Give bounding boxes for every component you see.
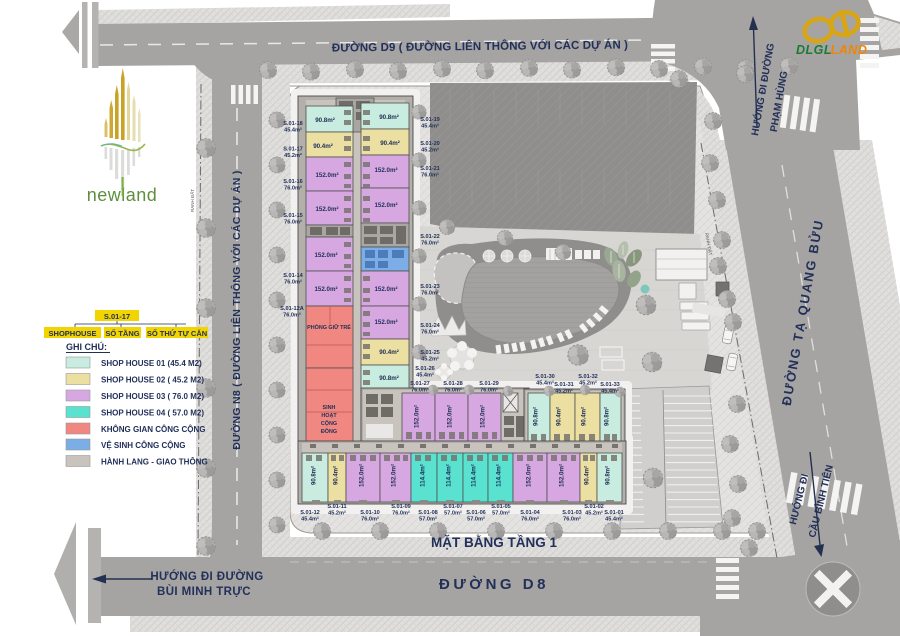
svg-text:45.4m²: 45.4m² — [421, 123, 439, 130]
svg-text:45.2m²: 45.2m² — [421, 147, 439, 154]
svg-text:152.0m²: 152.0m² — [414, 405, 421, 428]
svg-text:76.0m²: 76.0m² — [283, 312, 301, 319]
svg-text:152.0m²: 152.0m² — [315, 172, 338, 179]
svg-text:57.0m²: 57.0m² — [444, 510, 462, 517]
svg-text:RANH ĐẤT: RANH ĐẤT — [189, 189, 195, 212]
svg-text:45.4m²: 45.4m² — [605, 516, 623, 523]
svg-text:76.0m²: 76.0m² — [284, 219, 302, 226]
svg-text:S.01-11: S.01-11 — [327, 504, 346, 510]
svg-text:114.4m²: 114.4m² — [496, 464, 503, 487]
svg-text:SHOP HOUSE 03 ( 76.0 M2): SHOP HOUSE 03 ( 76.0 M2) — [101, 392, 204, 401]
svg-text:152.0m²: 152.0m² — [314, 286, 337, 293]
svg-text:SHOP HOUSE 04 ( 57.0 M2): SHOP HOUSE 04 ( 57.0 M2) — [101, 409, 204, 418]
svg-text:45.2m²: 45.2m² — [579, 380, 597, 387]
svg-text:45.2m²: 45.2m² — [555, 388, 573, 395]
svg-text:90.8m²: 90.8m² — [379, 375, 399, 382]
svg-text:S.01-06: S.01-06 — [466, 510, 486, 516]
svg-text:S.01-09: S.01-09 — [391, 504, 411, 510]
svg-text:76.0m²: 76.0m² — [411, 387, 429, 394]
svg-text:S.01-22: S.01-22 — [420, 234, 440, 240]
svg-text:152.0m²: 152.0m² — [359, 464, 366, 487]
svg-text:BÙI MINH TRỰC: BÙI MINH TRỰC — [157, 585, 251, 598]
svg-text:45.2m²: 45.2m² — [328, 510, 346, 517]
svg-text:HƯỚNG ĐI ĐƯỜNG: HƯỚNG ĐI ĐƯỜNG — [150, 570, 263, 583]
svg-text:VỆ SINH CÔNG CỘNG: VỆ SINH CÔNG CỘNG — [101, 441, 185, 450]
svg-text:152.0m²: 152.0m² — [447, 405, 454, 428]
svg-text:90.4m²: 90.4m² — [380, 140, 400, 147]
svg-text:S.01-15: S.01-15 — [283, 213, 303, 219]
svg-text:S.01-17: S.01-17 — [283, 147, 303, 153]
svg-text:S.01-33: S.01-33 — [600, 382, 620, 388]
svg-text:SHOP HOUSE 01 (45.4 M2): SHOP HOUSE 01 (45.4 M2) — [101, 359, 202, 368]
svg-text:90.4m²: 90.4m² — [313, 143, 333, 150]
svg-text:114.4m²: 114.4m² — [446, 464, 453, 487]
svg-text:S.01-29: S.01-29 — [479, 381, 499, 387]
svg-text:45.4m²: 45.4m² — [601, 388, 619, 395]
svg-text:SHOPHOUSE: SHOPHOUSE — [49, 329, 97, 338]
svg-text:S.01-30: S.01-30 — [535, 374, 555, 380]
svg-text:S.01-12A: S.01-12A — [280, 306, 304, 312]
svg-text:76.0m²: 76.0m² — [421, 329, 439, 336]
svg-text:HOẠT: HOẠT — [321, 413, 337, 419]
svg-text:45.2m²: 45.2m² — [284, 152, 302, 159]
svg-text:152.0m²: 152.0m² — [374, 167, 397, 174]
svg-text:S.01-18: S.01-18 — [283, 121, 303, 127]
svg-text:152.0m²: 152.0m² — [315, 206, 338, 213]
svg-text:76.0m²: 76.0m² — [284, 279, 302, 286]
svg-text:152.0m²: 152.0m² — [374, 202, 397, 209]
svg-text:PHÒNG GIỮ TRẺ: PHÒNG GIỮ TRẺ — [307, 323, 351, 331]
svg-text:76.0m²: 76.0m² — [563, 516, 581, 523]
svg-text:S.01-31: S.01-31 — [554, 382, 574, 388]
svg-text:SỐ TẦNG: SỐ TẦNG — [105, 328, 139, 338]
svg-text:76.0m²: 76.0m² — [361, 516, 379, 523]
svg-text:S.01-08: S.01-08 — [418, 510, 438, 516]
svg-text:45.2m²: 45.2m² — [421, 356, 439, 363]
svg-text:SỐ THỨ TỰ CĂN: SỐ THỨ TỰ CĂN — [147, 328, 207, 338]
svg-text:90.4m²: 90.4m² — [556, 407, 563, 426]
svg-text:S.01-07: S.01-07 — [443, 504, 463, 510]
svg-text:45.4m²: 45.4m² — [284, 127, 302, 134]
svg-text:45.4m²: 45.4m² — [536, 380, 554, 387]
svg-text:90.8m²: 90.8m² — [604, 407, 611, 426]
svg-text:S.01-19: S.01-19 — [420, 117, 440, 123]
svg-text:152.0m²: 152.0m² — [374, 286, 397, 293]
svg-text:76.0m²: 76.0m² — [421, 290, 439, 297]
svg-text:76.0m²: 76.0m² — [480, 387, 498, 394]
svg-text:S.01-28: S.01-28 — [443, 381, 463, 387]
svg-text:152.0m²: 152.0m² — [559, 464, 566, 487]
svg-text:ĐỒNG: ĐỒNG — [321, 428, 337, 435]
svg-text:S.01-05: S.01-05 — [491, 504, 511, 510]
svg-text:S.01-16: S.01-16 — [283, 179, 303, 185]
svg-text:S.01-12: S.01-12 — [300, 510, 320, 516]
svg-text:S.01-27: S.01-27 — [410, 381, 430, 387]
svg-text:152.0m²: 152.0m² — [314, 252, 337, 259]
svg-text:76.0m²: 76.0m² — [421, 172, 439, 179]
svg-text:152.0m²: 152.0m² — [480, 405, 487, 428]
svg-text:76.0m²: 76.0m² — [444, 387, 462, 394]
svg-text:DLGL: DLGL — [796, 43, 832, 57]
svg-text:S.01-21: S.01-21 — [420, 166, 440, 172]
svg-text:90.8m²: 90.8m² — [311, 466, 318, 485]
svg-text:57.0m²: 57.0m² — [492, 510, 510, 517]
svg-text:S.01-24: S.01-24 — [420, 323, 440, 329]
svg-text:S.01-25: S.01-25 — [420, 350, 440, 356]
svg-text:76.0m²: 76.0m² — [421, 240, 439, 247]
svg-text:90.8m²: 90.8m² — [315, 117, 335, 124]
svg-text:S.01-32: S.01-32 — [578, 374, 598, 380]
svg-text:114.4m²: 114.4m² — [471, 464, 478, 487]
svg-text:90.8m²: 90.8m² — [533, 407, 540, 426]
svg-text:HÀNH LANG - GIAO THÔNG: HÀNH LANG - GIAO THÔNG — [101, 458, 208, 467]
svg-text:S.01-04: S.01-04 — [520, 510, 540, 516]
svg-text:76.0m²: 76.0m² — [521, 516, 539, 523]
svg-text:LAND: LAND — [831, 43, 868, 57]
svg-text:ĐƯỜNG N8 ( ĐƯỜNG LIÊN THÔNG VỚ: ĐƯỜNG N8 ( ĐƯỜNG LIÊN THÔNG VỚI CÁC DỰ Á… — [230, 170, 243, 449]
svg-text:S.01-17: S.01-17 — [104, 312, 130, 321]
svg-text:CỘNG: CỘNG — [321, 419, 337, 427]
svg-text:90.4m²: 90.4m² — [581, 407, 588, 426]
svg-text:S.01-03: S.01-03 — [562, 510, 582, 516]
svg-text:45.4m²: 45.4m² — [416, 372, 434, 379]
svg-text:45.2m²: 45.2m² — [585, 510, 603, 517]
svg-text:57.0m²: 57.0m² — [419, 516, 437, 523]
svg-text:90.4m²: 90.4m² — [333, 466, 340, 485]
svg-text:SINH: SINH — [323, 405, 336, 411]
svg-text:GHI CHÚ:: GHI CHÚ: — [66, 341, 107, 352]
svg-text:S.01-14: S.01-14 — [283, 273, 303, 279]
svg-text:MẶT BẰNG TẦNG 1: MẶT BẰNG TẦNG 1 — [431, 535, 557, 550]
svg-text:SHOP HOUSE 02 ( 45.2 M2): SHOP HOUSE 02 ( 45.2 M2) — [101, 376, 204, 385]
svg-text:114.4m²: 114.4m² — [420, 464, 427, 487]
svg-text:152.0m²: 152.0m² — [526, 464, 533, 487]
svg-text:S.01-01: S.01-01 — [604, 510, 624, 516]
svg-text:76.0m²: 76.0m² — [284, 185, 302, 192]
svg-text:S.01-10: S.01-10 — [360, 510, 380, 516]
svg-text:90.8m²: 90.8m² — [605, 466, 612, 485]
svg-text:S.01-02: S.01-02 — [584, 504, 604, 510]
svg-text:ĐƯỜNG D8: ĐƯỜNG D8 — [439, 575, 549, 593]
svg-text:90.4m²: 90.4m² — [379, 349, 399, 356]
svg-text:152.0m²: 152.0m² — [391, 464, 398, 487]
svg-text:S.01-26: S.01-26 — [415, 366, 435, 372]
svg-text:76.0m²: 76.0m² — [392, 510, 410, 517]
svg-text:45.4m²: 45.4m² — [301, 516, 319, 523]
svg-text:152.0m²: 152.0m² — [374, 319, 397, 326]
svg-text:S.01-23: S.01-23 — [420, 284, 440, 290]
svg-text:KHÔNG GIAN CÔNG CỘNG: KHÔNG GIAN CÔNG CỘNG — [101, 425, 205, 434]
svg-text:90.8m²: 90.8m² — [379, 114, 399, 121]
svg-text:57.0m²: 57.0m² — [467, 516, 485, 523]
svg-text:90.4m²: 90.4m² — [584, 466, 591, 485]
svg-text:S.01-20: S.01-20 — [420, 141, 440, 147]
